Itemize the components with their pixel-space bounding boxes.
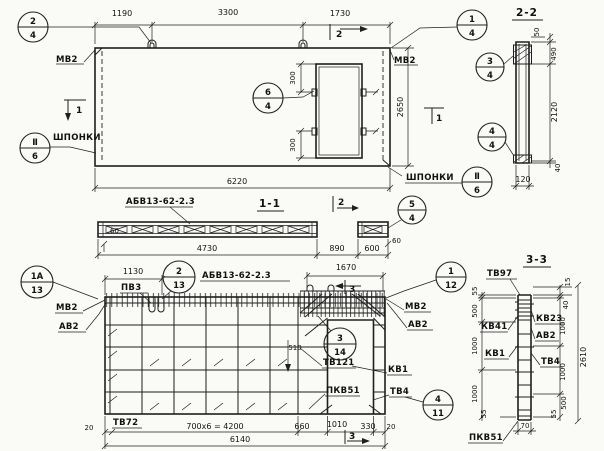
dim-330: 330 [360,422,375,431]
elevation-label-pkv51: ПКВ51 [309,386,360,409]
elevation-label-mv2-left: МВ2 [55,300,105,313]
dim-300-bot: 300 [289,138,297,151]
svg-text:1: 1 [436,114,442,124]
section-1-1-label: АБВ13-62-2.3 [125,197,195,224]
svg-text:АБВ13-62-2.3: АБВ13-62-2.3 [202,271,271,281]
svg-text:4: 4 [435,395,441,405]
svg-text:4: 4 [30,31,36,41]
svg-text:1000: 1000 [471,337,479,355]
svg-text:ТВ97: ТВ97 [487,269,512,279]
svg-text:11: 11 [432,409,444,419]
section-mark-2-top: 2 [330,24,368,40]
svg-text:2: 2 [30,17,36,27]
svg-text:5: 5 [409,200,415,210]
svg-text:40: 40 [562,301,570,310]
plan-dim-offsets: 300 300 [289,61,316,161]
dim-2610: 2610 [579,347,588,367]
plan-label-shponki-left: ШПОНКИ [50,133,101,153]
svg-text:55: 55 [471,287,479,296]
svg-text:4: 4 [409,214,415,224]
blueprint-sheet: 1190 3300 1730 2 6220 2650 300 300 [0,0,604,451]
svg-text:2: 2 [176,267,182,277]
svg-text:510: 510 [288,344,301,352]
elevation-title: АБВ13-62-2.3 [200,271,290,281]
svg-text:12: 12 [445,281,457,291]
svg-text:1000: 1000 [471,385,479,403]
section-1-1: 1-1 АБВ13-62-2.3 2 [95,196,401,259]
plan-label-shponki-right: ШПОНКИ [388,167,462,183]
svg-text:14: 14 [334,348,346,358]
svg-text:4: 4 [469,29,475,39]
svg-text:4: 4 [489,141,495,151]
svg-text:ТВ4: ТВ4 [390,387,409,397]
dim-40: 40 [554,164,562,173]
svg-text:Ⅱ: Ⅱ [32,138,38,148]
dim-20-right: 20 [387,423,396,431]
section-3-3-label-kv41: КВ41 [480,316,518,332]
svg-text:4: 4 [487,71,493,81]
dim-890: 890 [329,244,344,253]
dim-3300: 3300 [218,8,238,17]
section-mark-1-left: 1 [64,100,86,121]
dim-4200: 700x6 = 4200 [186,422,243,431]
svg-text:2: 2 [338,198,344,208]
svg-text:АВ2: АВ2 [408,320,428,330]
dim-50: 50 [533,28,541,37]
section-2-2: 2-2 50 490 2120 40 120 [511,7,562,190]
svg-text:ШПОНКИ: ШПОНКИ [406,173,454,183]
callout-1-12: 1 12 [386,262,466,298]
svg-text:1: 1 [448,267,454,277]
dim-6220: 6220 [227,177,247,186]
section-1-1-body [98,222,388,237]
svg-text:1000: 1000 [559,363,567,381]
callout-II-6-left: Ⅱ 6 [20,133,50,163]
plan-view: 1190 3300 1730 2 6220 2650 300 300 [50,8,462,192]
svg-text:МВ2: МВ2 [56,303,78,313]
svg-text:3: 3 [349,432,355,442]
section-3-3-label-pkv51: ПКВ51 [468,421,518,443]
section-3-3-label-kv1: КВ1 [484,345,518,359]
dim-490: 490 [550,47,558,60]
dim-300-top: 300 [289,71,297,84]
callout-1-4: 1 4 [391,10,487,48]
callout-5-4: 5 4 [388,196,426,228]
dim-6140: 6140 [230,435,250,444]
svg-text:КВ41: КВ41 [481,322,507,332]
dim-1730: 1730 [330,9,350,18]
dim-4730: 4730 [197,244,217,253]
dim-660: 660 [294,422,309,431]
plan-label-mv2-right: МВ2 [390,50,418,66]
plan-label-mv2-left: МВ2 [56,50,95,65]
section-mark-1-right: 1 [424,108,444,124]
svg-text:ПКВ51: ПКВ51 [469,433,503,443]
svg-text:АВ2: АВ2 [536,331,556,341]
plan-dim-top: 1190 3300 1730 [92,8,393,44]
svg-text:55: 55 [480,410,488,419]
svg-text:МВ2: МВ2 [394,56,416,66]
section-3-3-dims-right: 15 40 1000 1000 500 55 2610 [533,278,588,424]
dim-1190: 1190 [112,9,132,18]
svg-text:6: 6 [474,186,480,196]
svg-text:13: 13 [173,281,185,291]
svg-text:МВ2: МВ2 [405,302,427,312]
dim-20-left: 20 [85,424,94,432]
section-1-1-title: 1-1 [259,198,281,210]
svg-text:ТВ72: ТВ72 [113,418,138,428]
svg-text:3: 3 [349,285,355,295]
svg-text:ПВ3: ПВ3 [121,283,141,293]
callout-1A-13: 1А 13 [21,266,98,299]
section-3-3: 3-3 ТВ97 КВ41 КВ1 КВ23 [468,254,588,443]
elevation-label-tv4: ТВ4 [373,387,412,400]
svg-text:1: 1 [76,106,82,116]
plan-dim-bottom: 6220 [92,168,393,192]
section-2-2-member [514,42,532,163]
svg-text:13: 13 [31,286,43,296]
svg-text:1130: 1130 [123,267,143,276]
section-3-3-label-av2: АВ2 [531,328,559,341]
section-3-3-title: 3-3 [526,254,548,266]
section-1-1-dims: 60 4730 890 600 60 [95,227,401,259]
section-mark-2-at-1-1: 2 [333,196,359,212]
section-mark-2-label: 2 [336,30,342,40]
svg-text:3: 3 [487,57,493,67]
svg-text:6: 6 [32,152,38,162]
section-3-3-member [515,295,534,420]
svg-text:1: 1 [469,15,475,25]
dim-120: 120 [515,175,530,184]
section-2-2-title: 2-2 [516,7,538,19]
svg-text:55: 55 [550,410,558,419]
elevation-view: АБВ13-62-2.3 [55,263,433,449]
svg-text:ШПОНКИ: ШПОНКИ [53,133,101,143]
plan-opening [312,64,379,158]
svg-text:ТВ4: ТВ4 [541,357,560,367]
section-3-3-label-tv97: ТВ97 [486,269,520,295]
svg-text:АБВ13-62-2.3: АБВ13-62-2.3 [126,197,195,207]
svg-text:1670: 1670 [336,263,356,272]
svg-text:70: 70 [521,422,530,430]
svg-text:МВ2: МВ2 [56,55,78,65]
svg-text:КВ1: КВ1 [388,365,408,375]
dim-60-left: 60 [110,227,119,235]
callout-3-14: 3 14 [318,316,356,360]
svg-text:4: 4 [489,127,495,137]
elevation-label-tv72: ТВ72 [112,418,142,428]
svg-text:АВ2: АВ2 [59,322,79,332]
dim-2120: 2120 [550,102,559,122]
dim-60-right: 60 [392,237,401,245]
svg-text:4: 4 [265,102,271,112]
svg-text:1000: 1000 [559,317,567,335]
svg-text:15: 15 [564,278,572,287]
plan-panel-outline [95,40,390,166]
svg-text:ПКВ51: ПКВ51 [326,386,360,396]
svg-text:1А: 1А [31,272,44,282]
callout-II-6-right: Ⅱ 6 [462,167,492,197]
callouts: 2 4 1 4 6 4 Ⅱ 6 Ⅱ 6 3 4 [18,10,514,420]
svg-text:КВ1: КВ1 [485,349,505,359]
callout-6-4: 6 4 [253,83,314,113]
svg-text:Ⅱ: Ⅱ [474,172,480,182]
callout-3-4: 3 4 [476,53,513,81]
svg-text:6: 6 [265,88,271,98]
section-3-3-dim-70: 70 [513,422,536,435]
callout-4-11: 4 11 [405,390,453,420]
dim-2650: 2650 [396,97,405,117]
callout-4-4: 4 4 [478,123,514,156]
svg-text:500: 500 [471,304,479,317]
dim-1010: 1010 [327,420,347,429]
elevation-dim-510: 510 [285,340,302,372]
svg-text:500: 500 [560,396,568,409]
dim-600: 600 [364,244,379,253]
svg-text:3: 3 [337,334,343,344]
